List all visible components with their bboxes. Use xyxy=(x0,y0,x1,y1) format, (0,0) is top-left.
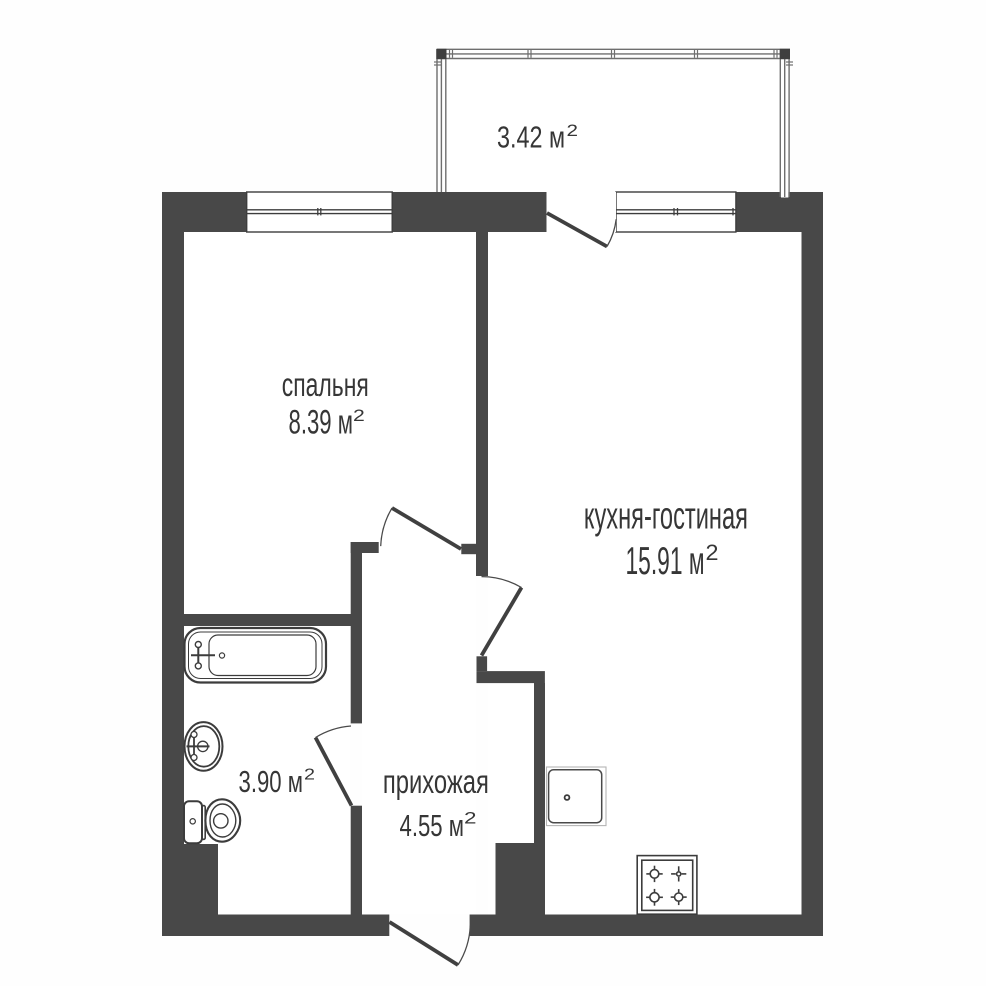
svg-text:8.39 м: 8.39 м xyxy=(289,404,354,442)
svg-text:2: 2 xyxy=(706,540,719,565)
svg-text:3.42 м: 3.42 м xyxy=(497,120,565,155)
svg-text:спальня: спальня xyxy=(282,366,369,403)
svg-text:15.91 м: 15.91 м xyxy=(626,540,705,583)
svg-text:2: 2 xyxy=(567,122,579,140)
svg-text:2: 2 xyxy=(304,767,315,784)
svg-text:3.90 м: 3.90 м xyxy=(239,764,304,799)
svg-text:2: 2 xyxy=(353,407,365,425)
svg-text:кухня-гостиная: кухня-гостиная xyxy=(584,496,748,538)
svg-text:прихожая: прихожая xyxy=(383,763,489,800)
svg-text:2: 2 xyxy=(464,810,477,828)
svg-text:4.55 м: 4.55 м xyxy=(400,808,465,843)
